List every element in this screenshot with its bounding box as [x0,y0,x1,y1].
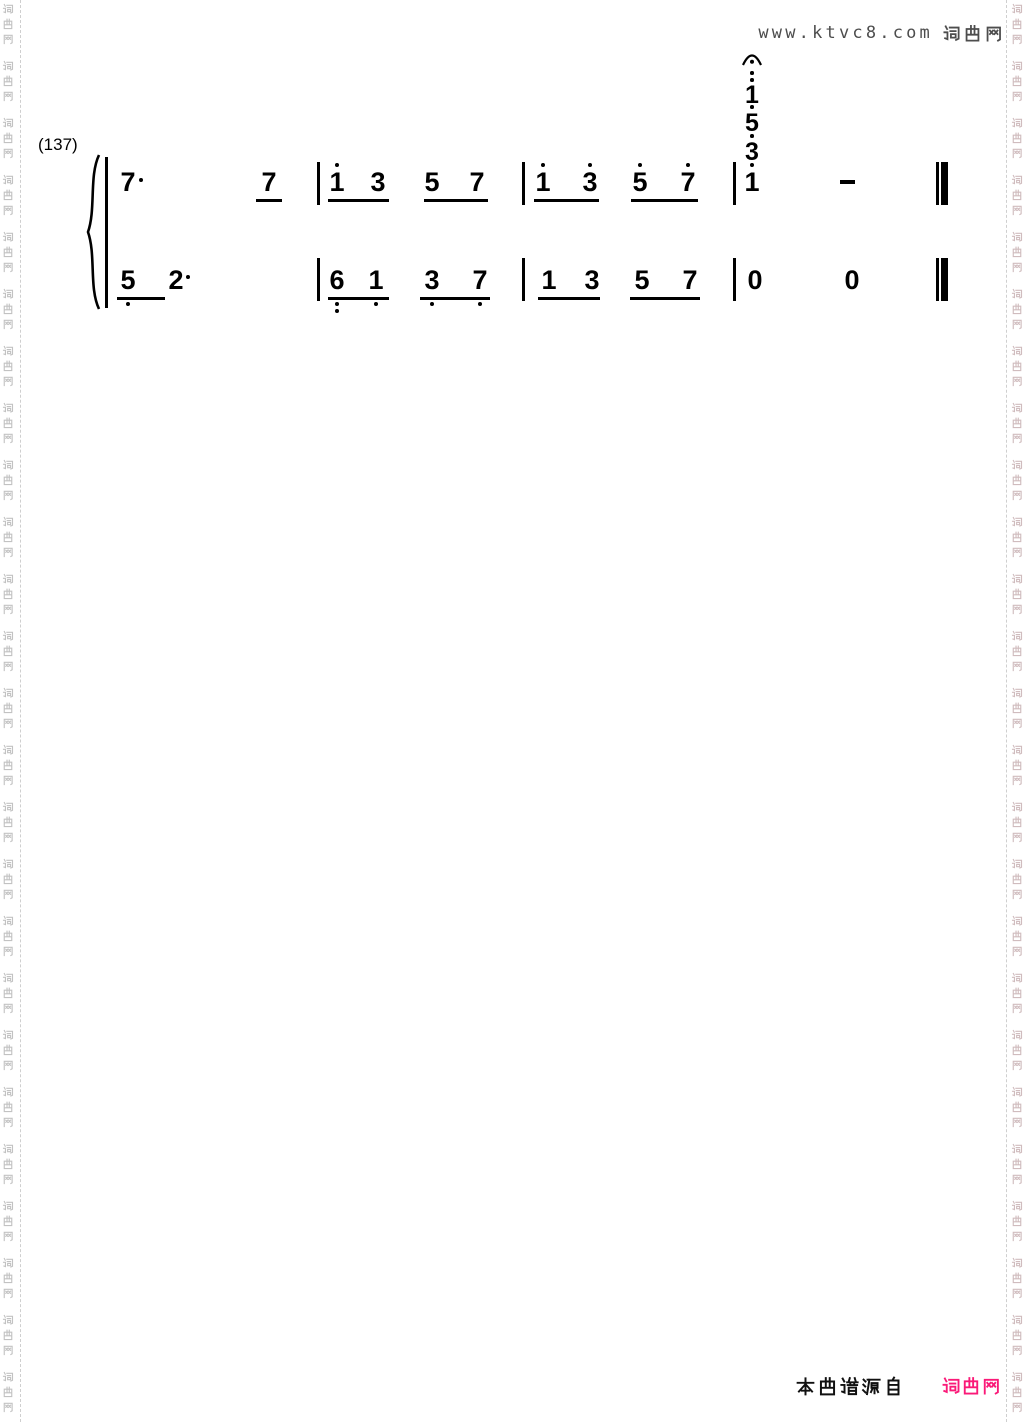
final-barline-thin [936,258,939,301]
chord-note-3: 3 [735,140,769,164]
watermark-char-词 [2,630,18,645]
watermark-char-网 [1011,1116,1027,1131]
watermark-group [1011,687,1027,744]
watermark-char-曲 [1011,930,1027,945]
footer-site-link[interactable] [941,1376,1001,1396]
watermark-group [1011,1371,1027,1422]
note-3: 3 [573,169,607,195]
watermark-char-网 [1011,33,1027,48]
eighth-beam [328,199,389,202]
watermark-group [2,1371,18,1422]
octave-dot-below [126,302,130,306]
watermark-char-网 [2,1401,18,1416]
watermark-group [2,3,18,60]
note-5: 5 [623,169,657,195]
final-barline-thick [941,258,948,301]
watermark-char-曲 [1011,588,1027,603]
watermark-group [2,744,18,801]
watermark-char-词 [2,1257,18,1272]
watermark-char-曲 [1011,873,1027,888]
watermark-char-网 [1011,888,1027,903]
right-dashed-divider [1006,0,1007,1422]
watermark-char-网 [1011,1173,1027,1188]
octave-dot-above [541,163,545,167]
eighth-beam [256,199,282,202]
watermark-char-词 [1011,573,1027,588]
watermark-char-网 [2,717,18,732]
watermark-char-词 [2,687,18,702]
cjk-char-谱 [839,1376,860,1397]
watermark-char-曲 [2,1044,18,1059]
watermark-char-网 [2,774,18,789]
watermark-group [1011,60,1027,117]
octave-dot-above [686,163,690,167]
note-1: 1 [359,267,393,293]
watermark-group [1011,744,1027,801]
watermark-char-词 [1011,1143,1027,1158]
watermark-char-曲 [1011,1158,1027,1173]
cjk-char-曲 [817,1376,838,1397]
watermark-group [2,1314,18,1371]
watermark-char-词 [2,402,18,417]
watermark-group [2,516,18,573]
watermark-char-词 [2,3,18,18]
watermark-char-词 [1011,1314,1027,1329]
watermark-char-曲 [2,1158,18,1173]
watermark-group [2,630,18,687]
watermark-char-曲 [1011,303,1027,318]
eighth-beam [117,297,165,300]
watermark-char-曲 [1011,1215,1027,1230]
watermark-char-曲 [2,816,18,831]
watermark-char-曲 [1011,987,1027,1002]
watermark-char-曲 [2,1329,18,1344]
eighth-beam [424,199,488,202]
watermark-char-词 [1011,1086,1027,1101]
watermark-char-词 [1011,174,1027,189]
watermark-group [2,1200,18,1257]
barline [522,258,525,301]
watermark-group [2,573,18,630]
watermark-group [1011,915,1027,972]
watermark-char-曲 [1011,1386,1027,1401]
watermark-group [2,972,18,1029]
watermark-char-词 [1011,630,1027,645]
watermark-char-曲 [1011,645,1027,660]
watermark-char-曲 [2,588,18,603]
barline [317,162,320,205]
watermark-group [1011,288,1027,345]
eighth-beam [631,199,698,202]
chord-note-5: 5 [735,111,769,135]
octave-dot-below [335,309,339,313]
watermark-char-词 [2,345,18,360]
watermark-char-网 [1011,147,1027,162]
watermark-char-词 [1011,288,1027,303]
watermark-group [1011,858,1027,915]
watermark-char-网 [1011,660,1027,675]
watermark-char-网 [2,147,18,162]
watermark-group [1011,1143,1027,1200]
fermata-icon [741,49,763,67]
watermark-group [1011,459,1027,516]
watermark-char-网 [1011,1059,1027,1074]
watermark-char-词 [1011,972,1027,987]
watermark-char-词 [1011,915,1027,930]
watermark-char-词 [1011,117,1027,132]
watermark-group [2,915,18,972]
watermark-char-词 [2,1143,18,1158]
chord-octave-dot [750,71,754,75]
note-7: 7 [671,169,705,195]
watermark-char-网 [2,432,18,447]
watermark-char-词 [2,915,18,930]
watermark-char-词 [1011,687,1027,702]
watermark-char-曲 [1011,816,1027,831]
watermark-char-曲 [1011,132,1027,147]
watermark-char-网 [1011,90,1027,105]
watermark-char-网 [2,831,18,846]
watermark-group [2,459,18,516]
system-brace [83,153,105,311]
watermark-char-曲 [2,417,18,432]
note-5: 5 [415,169,449,195]
watermark-char-网 [1011,1344,1027,1359]
watermark-char-网 [1011,546,1027,561]
watermark-char-词 [1011,402,1027,417]
cjk-char-源 [861,1376,882,1397]
watermark-char-曲 [1011,1044,1027,1059]
octave-dot-above [335,163,339,167]
watermark-char-曲 [2,132,18,147]
barline [522,162,525,205]
watermark-char-词 [1011,231,1027,246]
octave-dot-below [478,302,482,306]
left-dashed-divider [20,0,21,1422]
watermark-group [1011,972,1027,1029]
note-7: 7 [463,267,497,293]
watermark-char-网 [1011,489,1027,504]
note-5: 5 [625,267,659,293]
watermark-group [1011,630,1027,687]
watermark-char-曲 [2,1272,18,1287]
watermark-char-网 [2,375,18,390]
watermark-char-曲 [2,930,18,945]
watermark-char-词 [2,1314,18,1329]
watermark-char-词 [1011,801,1027,816]
watermark-char-词 [1011,345,1027,360]
watermark-group [2,1029,18,1086]
watermark-char-网 [2,33,18,48]
watermark-group [1011,801,1027,858]
cjk-char-曲 [961,1376,981,1396]
final-barline-thick [941,162,948,205]
watermark-char-词 [2,516,18,531]
note-1: 1 [735,169,769,195]
watermark-char-网 [2,489,18,504]
watermark-char-曲 [2,759,18,774]
watermark-char-曲 [1011,1272,1027,1287]
barline [733,258,736,301]
eighth-beam [538,297,600,300]
note-1: 1 [526,169,560,195]
watermark-group [2,345,18,402]
barline [733,162,736,205]
octave-dot-above [638,163,642,167]
site-name-text [942,24,1003,43]
watermark-group [2,1257,18,1314]
watermark-char-曲 [2,75,18,90]
system-barline [105,157,108,308]
watermark-char-词 [1011,1257,1027,1272]
watermark-char-网 [2,603,18,618]
watermark-char-曲 [2,303,18,318]
watermark-char-词 [1011,60,1027,75]
site-url-text: www.ktvc8.com [758,23,933,43]
watermark-group [1011,117,1027,174]
watermark-char-词 [1011,858,1027,873]
note-0: 0 [738,267,772,293]
watermark-char-曲 [2,1101,18,1116]
watermark-group [1011,1086,1027,1143]
watermark-char-网 [1011,1230,1027,1245]
chord-note-1: 1 [735,83,769,107]
watermark-char-曲 [1011,702,1027,717]
watermark-group [1011,3,1027,60]
watermark-char-网 [2,318,18,333]
watermark-char-网 [1011,375,1027,390]
sheet-music-page: www.ktvc8.com (137) 77135713571526137135… [0,0,1030,1422]
watermark-char-网 [1011,1002,1027,1017]
watermark-char-网 [1011,432,1027,447]
dot-after-note [139,178,143,182]
watermark-char-网 [2,945,18,960]
watermark-group [1011,231,1027,288]
watermark-char-曲 [1011,1101,1027,1116]
watermark-group [2,858,18,915]
watermark-group [1011,573,1027,630]
watermark-char-曲 [1011,417,1027,432]
watermark-group [2,60,18,117]
watermark-group [1011,1314,1027,1371]
watermark-char-词 [1011,1200,1027,1215]
watermark-char-网 [1011,717,1027,732]
watermark-char-词 [1011,1371,1027,1386]
measure-number-label: (137) [38,135,78,155]
cjk-char-词 [942,24,961,43]
note-dash [840,180,855,184]
watermark-char-词 [2,801,18,816]
watermark-char-网 [1011,831,1027,846]
dot-after-note [186,275,190,279]
watermark-group [2,402,18,459]
watermark-char-词 [2,1029,18,1044]
watermark-group [1011,1200,1027,1257]
watermark-char-词 [1011,744,1027,759]
watermark-char-曲 [2,1215,18,1230]
note-3: 3 [415,267,449,293]
cjk-char-本 [795,1376,816,1397]
watermark-char-词 [2,1200,18,1215]
watermark-group [1011,174,1027,231]
watermark-group [2,801,18,858]
watermark-char-词 [2,1086,18,1101]
watermark-group [1011,345,1027,402]
watermark-char-曲 [1011,1329,1027,1344]
watermark-char-曲 [1011,18,1027,33]
note-6: 6 [320,267,354,293]
watermark-char-曲 [1011,189,1027,204]
watermark-char-网 [2,1344,18,1359]
right-watermark-column [1011,3,1027,1422]
watermark-group [1011,1257,1027,1314]
octave-dot-below [430,302,434,306]
final-barline-thin [936,162,939,205]
watermark-char-曲 [2,873,18,888]
note-1: 1 [320,169,354,195]
watermark-char-词 [1011,1029,1027,1044]
note-7: 7 [252,169,286,195]
note-5: 5 [111,267,145,293]
watermark-char-网 [2,1287,18,1302]
cjk-char-曲 [963,24,982,43]
note-3: 3 [361,169,395,195]
watermark-char-曲 [2,987,18,1002]
watermark-char-网 [1011,1401,1027,1416]
note-0: 0 [835,267,869,293]
watermark-char-曲 [2,360,18,375]
watermark-char-网 [2,1230,18,1245]
watermark-char-网 [1011,318,1027,333]
watermark-char-网 [2,1173,18,1188]
eighth-beam [420,297,490,300]
watermark-group [1011,402,1027,459]
watermark-char-词 [2,573,18,588]
watermark-char-曲 [2,702,18,717]
note-1: 1 [532,267,566,293]
cjk-char-词 [941,1376,961,1396]
eighth-beam [534,199,599,202]
watermark-group [2,687,18,744]
left-watermark-column [2,3,18,1422]
note-3: 3 [575,267,609,293]
watermark-char-网 [2,90,18,105]
watermark-char-词 [2,174,18,189]
watermark-char-曲 [1011,474,1027,489]
watermark-char-网 [2,546,18,561]
note-7: 7 [673,267,707,293]
watermark-char-词 [2,60,18,75]
cjk-char-网 [981,1376,1001,1396]
cjk-char-自 [883,1376,904,1397]
watermark-group [2,117,18,174]
watermark-char-网 [1011,603,1027,618]
watermark-char-曲 [2,246,18,261]
watermark-char-曲 [2,531,18,546]
watermark-char-词 [2,1371,18,1386]
watermark-group [2,231,18,288]
watermark-char-词 [2,858,18,873]
watermark-char-词 [1011,459,1027,474]
watermark-char-词 [2,972,18,987]
watermark-char-网 [2,660,18,675]
watermark-char-曲 [1011,360,1027,375]
watermark-char-网 [1011,774,1027,789]
watermark-char-网 [2,1116,18,1131]
watermark-group [1011,516,1027,573]
watermark-char-词 [1011,516,1027,531]
watermark-group [2,288,18,345]
watermark-char-词 [2,288,18,303]
watermark-char-词 [2,117,18,132]
watermark-char-曲 [1011,246,1027,261]
watermark-char-词 [2,744,18,759]
watermark-char-网 [1011,945,1027,960]
watermark-char-曲 [1011,759,1027,774]
watermark-char-网 [2,888,18,903]
watermark-char-曲 [1011,531,1027,546]
watermark-group [1011,1029,1027,1086]
watermark-char-曲 [2,474,18,489]
site-header: www.ktvc8.com [758,23,1003,43]
watermark-char-网 [2,261,18,276]
octave-dot-below [335,302,339,306]
watermark-group [2,1086,18,1143]
chord-octave-dot [750,78,754,82]
note-7: 7 [111,169,145,195]
footer-source-label [795,1376,904,1397]
watermark-char-曲 [2,645,18,660]
watermark-char-词 [2,459,18,474]
watermark-char-网 [2,204,18,219]
octave-dot-below [374,302,378,306]
watermark-char-网 [2,1002,18,1017]
note-2: 2 [159,267,193,293]
octave-dot-above [588,163,592,167]
watermark-group [2,174,18,231]
note-7: 7 [460,169,494,195]
watermark-char-曲 [2,189,18,204]
barline [317,258,320,301]
watermark-char-词 [1011,3,1027,18]
watermark-group [2,1143,18,1200]
watermark-char-网 [2,1059,18,1074]
watermark-char-曲 [2,18,18,33]
watermark-char-词 [2,231,18,246]
eighth-beam [630,297,700,300]
watermark-char-曲 [2,1386,18,1401]
cjk-char-网 [984,24,1003,43]
watermark-char-网 [1011,1287,1027,1302]
watermark-char-网 [1011,261,1027,276]
watermark-char-曲 [1011,75,1027,90]
watermark-char-网 [1011,204,1027,219]
eighth-beam [328,297,389,300]
